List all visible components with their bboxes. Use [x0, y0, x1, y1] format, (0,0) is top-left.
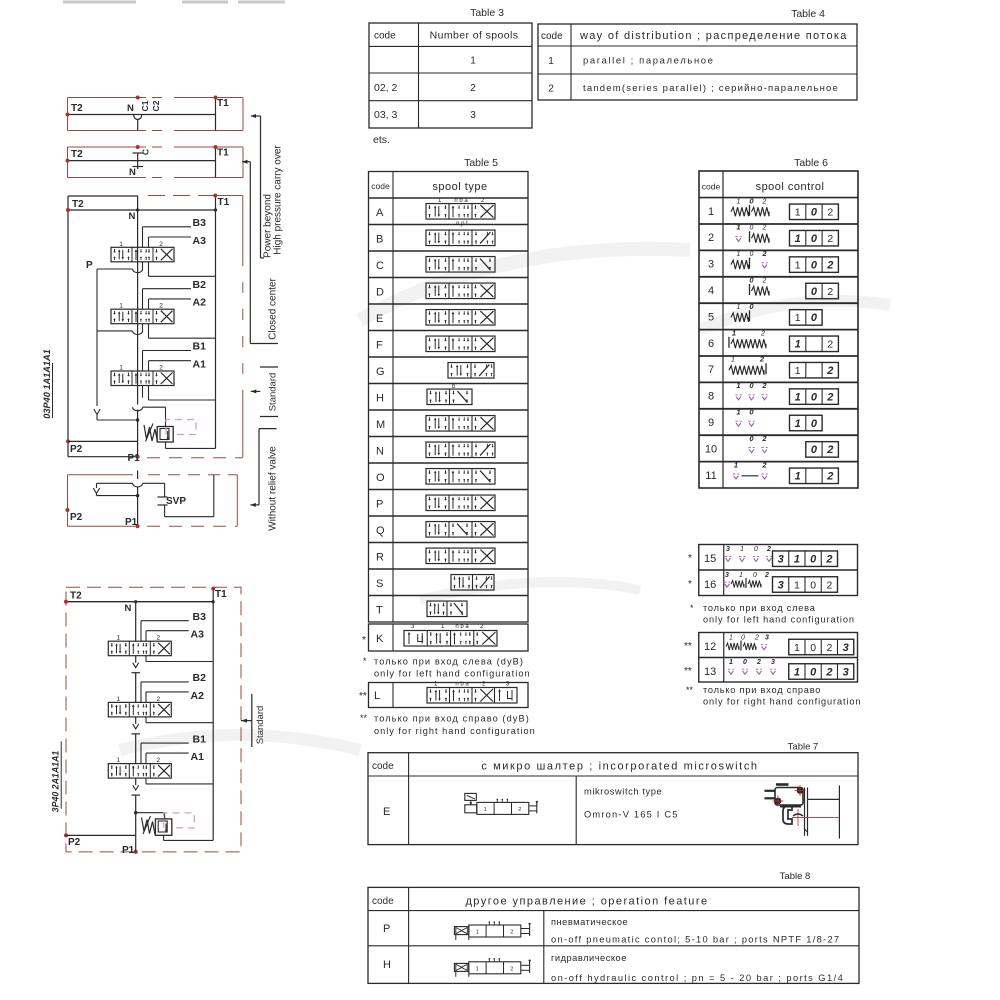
svg-text:code: code [372, 761, 394, 772]
svg-text:3: 3 [708, 259, 714, 271]
svg-text:1: 1 [795, 418, 801, 430]
svg-text:2: 2 [827, 339, 833, 351]
svg-text:0: 0 [743, 659, 747, 666]
svg-text:way of distribution ; распреде: way of distribution ; распределение пото… [579, 30, 848, 42]
svg-text:другое управление ; operation: другое управление ; operation feature [465, 896, 708, 908]
svg-text:P: P [383, 923, 390, 935]
svg-text:2: 2 [826, 471, 833, 483]
svg-text:0: 0 [811, 207, 818, 219]
svg-text:1: 1 [737, 251, 741, 258]
svg-text:2: 2 [760, 330, 765, 337]
svg-text:3: 3 [778, 579, 784, 591]
svg-text:03, 3: 03, 3 [374, 109, 398, 121]
svg-text:2: 2 [827, 286, 833, 298]
svg-text:P: P [376, 498, 383, 510]
svg-text:n b a: n b a [455, 624, 469, 630]
svg-text:11: 11 [705, 470, 716, 482]
svg-text:1: 1 [794, 642, 800, 654]
svg-text:N: N [376, 445, 384, 457]
svg-text:0: 0 [810, 666, 817, 678]
svg-text:1: 1 [795, 391, 801, 403]
svg-text:0: 0 [810, 554, 817, 566]
svg-text:T: T [376, 604, 383, 616]
svg-text:Number of spools: Number of spools [430, 30, 519, 42]
svg-text:code: code [374, 31, 396, 42]
svg-text:2: 2 [826, 444, 833, 456]
svg-text:2: 2 [708, 232, 714, 244]
svg-text:3: 3 [726, 546, 730, 553]
svg-text:9: 9 [708, 417, 714, 429]
svg-text:16: 16 [704, 579, 716, 591]
svg-text:2: 2 [825, 666, 832, 678]
svg-text:3: 3 [411, 624, 415, 630]
svg-text:3: 3 [765, 635, 769, 642]
svg-text:6: 6 [708, 338, 714, 350]
svg-text:1: 1 [441, 624, 445, 630]
svg-text:L: L [374, 690, 380, 702]
svg-text:**: ** [359, 691, 367, 702]
svg-text:1: 1 [729, 659, 733, 666]
svg-text:2: 2 [762, 278, 767, 285]
svg-text:0: 0 [811, 259, 818, 271]
svg-text:2: 2 [548, 84, 554, 95]
svg-text:0: 0 [810, 579, 816, 591]
svg-text:**: ** [684, 641, 692, 652]
svg-text:K: K [376, 633, 384, 645]
svg-text:ets.: ets. [373, 134, 390, 146]
svg-text:2: 2 [762, 198, 767, 205]
svg-text:3: 3 [771, 659, 775, 666]
svg-text:n b a: n b a [454, 198, 468, 204]
svg-text:1: 1 [739, 572, 743, 579]
svg-text:2: 2 [764, 572, 769, 579]
svg-text:1: 1 [731, 357, 735, 364]
svg-text:13: 13 [704, 666, 716, 678]
svg-text:1: 1 [795, 233, 801, 245]
svg-text:only for left hand configurati: only for left hand configuration [703, 615, 855, 625]
svg-text:M: M [376, 419, 385, 431]
svg-text:*: * [363, 656, 367, 666]
svg-text:1: 1 [794, 666, 800, 678]
svg-text:0: 0 [750, 251, 754, 258]
svg-text:1: 1 [736, 408, 740, 417]
svg-text:2: 2 [762, 225, 767, 232]
svg-text:code: code [541, 31, 563, 42]
svg-text:2: 2 [510, 930, 513, 936]
svg-text:1: 1 [476, 966, 479, 972]
svg-text:7: 7 [708, 364, 714, 376]
svg-text:3: 3 [778, 554, 784, 566]
svg-text:Table 4: Table 4 [791, 8, 825, 20]
svg-text:1: 1 [708, 206, 714, 218]
svg-text:1: 1 [740, 546, 744, 553]
svg-text:tandem(series parallel) ; сери: tandem(series parallel) ; серийно-парале… [583, 83, 839, 94]
svg-text:only for right hand configurat: only for right hand configuration [374, 726, 536, 736]
svg-text:1: 1 [736, 223, 740, 232]
svg-text:n b a: n b a [455, 682, 469, 688]
svg-text:E: E [376, 313, 383, 325]
svg-text:0: 0 [753, 572, 757, 579]
svg-text:только при вход справо (dyB): только при вход справо (dyB) [374, 714, 530, 724]
svg-text:1: 1 [732, 328, 736, 337]
svg-text:code: code [702, 182, 721, 192]
svg-text:1: 1 [548, 56, 554, 67]
svg-text:3: 3 [843, 666, 849, 678]
svg-text:spool type: spool type [432, 181, 487, 193]
svg-text:0: 0 [811, 286, 818, 298]
svg-text:3: 3 [470, 110, 476, 121]
svg-text:2: 2 [518, 807, 521, 813]
svg-text:1: 1 [794, 579, 800, 591]
svg-text:2: 2 [826, 642, 832, 654]
svg-text:1: 1 [794, 554, 800, 566]
svg-text:2: 2 [826, 365, 833, 377]
svg-text:гидравлическое: гидравлическое [551, 953, 627, 963]
svg-text:0: 0 [811, 444, 818, 456]
svg-text:n p t: n p t [456, 221, 468, 227]
svg-text:S: S [376, 578, 383, 590]
svg-text:1: 1 [795, 339, 801, 351]
svg-text:R: R [376, 551, 384, 563]
svg-text:1: 1 [795, 207, 801, 219]
svg-text:**: ** [684, 666, 692, 677]
svg-text:0: 0 [811, 418, 818, 430]
svg-text:Table 7: Table 7 [788, 742, 819, 753]
svg-text:parallel ; паралельное: parallel ; паралельное [583, 56, 715, 67]
svg-text:2: 2 [766, 546, 771, 553]
svg-text:5: 5 [708, 311, 714, 323]
svg-text:*: * [362, 635, 366, 646]
svg-text:spool control: spool control [756, 181, 825, 193]
svg-text:2: 2 [826, 579, 832, 591]
svg-text:1: 1 [729, 635, 733, 642]
svg-text:2: 2 [470, 83, 476, 94]
svg-text:с микро шалтер ; incorporated: с микро шалтер ; incorporated microswitc… [481, 761, 758, 773]
svg-text:E: E [383, 806, 390, 818]
svg-text:1: 1 [734, 460, 738, 469]
svg-text:H: H [376, 392, 384, 404]
svg-text:2: 2 [754, 635, 759, 642]
svg-text:O: O [376, 472, 385, 484]
svg-text:on-off hydraulic control ; pn: on-off hydraulic control ; pn = 5 - 20 b… [551, 973, 844, 983]
svg-text:2: 2 [480, 624, 484, 630]
svg-text:0: 0 [811, 312, 818, 324]
svg-text:code: code [371, 181, 390, 191]
svg-text:2: 2 [761, 460, 767, 469]
svg-text:Table 3: Table 3 [470, 7, 504, 19]
svg-text:1: 1 [737, 304, 741, 311]
svg-text:only for right hand configurat: only for right hand configuration [703, 697, 861, 707]
svg-text:Q: Q [376, 525, 385, 537]
svg-text:2: 2 [827, 207, 833, 219]
svg-text:1: 1 [737, 198, 741, 205]
svg-text:0: 0 [811, 391, 818, 403]
svg-text:1: 1 [795, 259, 801, 271]
svg-text:только при вход слева: только при вход слева [703, 603, 816, 613]
svg-text:1: 1 [736, 381, 740, 390]
svg-text:12: 12 [704, 641, 716, 653]
svg-text:3: 3 [843, 642, 849, 654]
svg-text:H: H [383, 959, 391, 971]
svg-text:только при вход слева (dyB): только при вход слева (dyB) [374, 657, 524, 667]
svg-text:*: * [690, 603, 694, 613]
svg-text:mikroswitch type: mikroswitch type [584, 787, 662, 797]
svg-text:**: ** [686, 685, 694, 695]
svg-text:Table 8: Table 8 [780, 871, 811, 882]
svg-text:2: 2 [826, 391, 833, 403]
svg-text:только при вход справо: только при вход справо [703, 685, 821, 695]
svg-text:only for left hand configurati: only for left hand configuration [374, 669, 531, 679]
svg-text:A: A [376, 207, 384, 219]
svg-text:1: 1 [484, 807, 487, 813]
svg-text:on-off pneumatic contol; 5-10: on-off pneumatic contol; 5-10 bar ; port… [551, 935, 840, 945]
svg-text:2: 2 [761, 381, 767, 390]
svg-text:B: B [376, 233, 383, 245]
svg-text:0: 0 [810, 642, 816, 654]
svg-text:3: 3 [725, 572, 729, 579]
svg-text:2: 2 [510, 966, 513, 972]
svg-text:**: ** [360, 713, 368, 723]
svg-text:0: 0 [750, 225, 754, 232]
svg-text:0: 0 [811, 233, 818, 245]
svg-text:10: 10 [705, 443, 717, 455]
svg-text:*: * [688, 553, 692, 564]
svg-text:2: 2 [761, 249, 767, 258]
svg-text:Table 6: Table 6 [794, 157, 828, 169]
svg-text:2: 2 [759, 355, 765, 364]
svg-text:2: 2 [827, 233, 833, 245]
svg-text:2: 2 [756, 659, 761, 666]
svg-text:F: F [376, 339, 383, 351]
svg-text:0: 0 [741, 635, 745, 642]
svg-text:1: 1 [795, 471, 801, 483]
svg-text:Omron-V 165 I C5: Omron-V 165 I C5 [584, 810, 679, 820]
svg-text:пневматическое: пневматическое [551, 917, 628, 927]
svg-text:2: 2 [825, 554, 832, 566]
svg-text:4: 4 [708, 285, 714, 297]
svg-text:2: 2 [826, 259, 833, 271]
svg-text:15: 15 [704, 553, 716, 565]
svg-text:8: 8 [708, 391, 714, 403]
svg-text:D: D [376, 286, 384, 298]
svg-text:1: 1 [476, 930, 479, 936]
svg-text:2: 2 [761, 434, 767, 443]
svg-text:0: 0 [754, 546, 758, 553]
svg-text:1: 1 [795, 312, 801, 324]
svg-text:C: C [376, 260, 384, 272]
svg-text:1: 1 [795, 365, 801, 377]
svg-text:G: G [376, 366, 385, 378]
svg-text:02, 2: 02, 2 [374, 82, 398, 94]
svg-text:code: code [372, 896, 394, 907]
svg-text:*: * [688, 579, 692, 590]
svg-text:1: 1 [470, 56, 476, 67]
svg-text:Table 5: Table 5 [464, 157, 498, 169]
